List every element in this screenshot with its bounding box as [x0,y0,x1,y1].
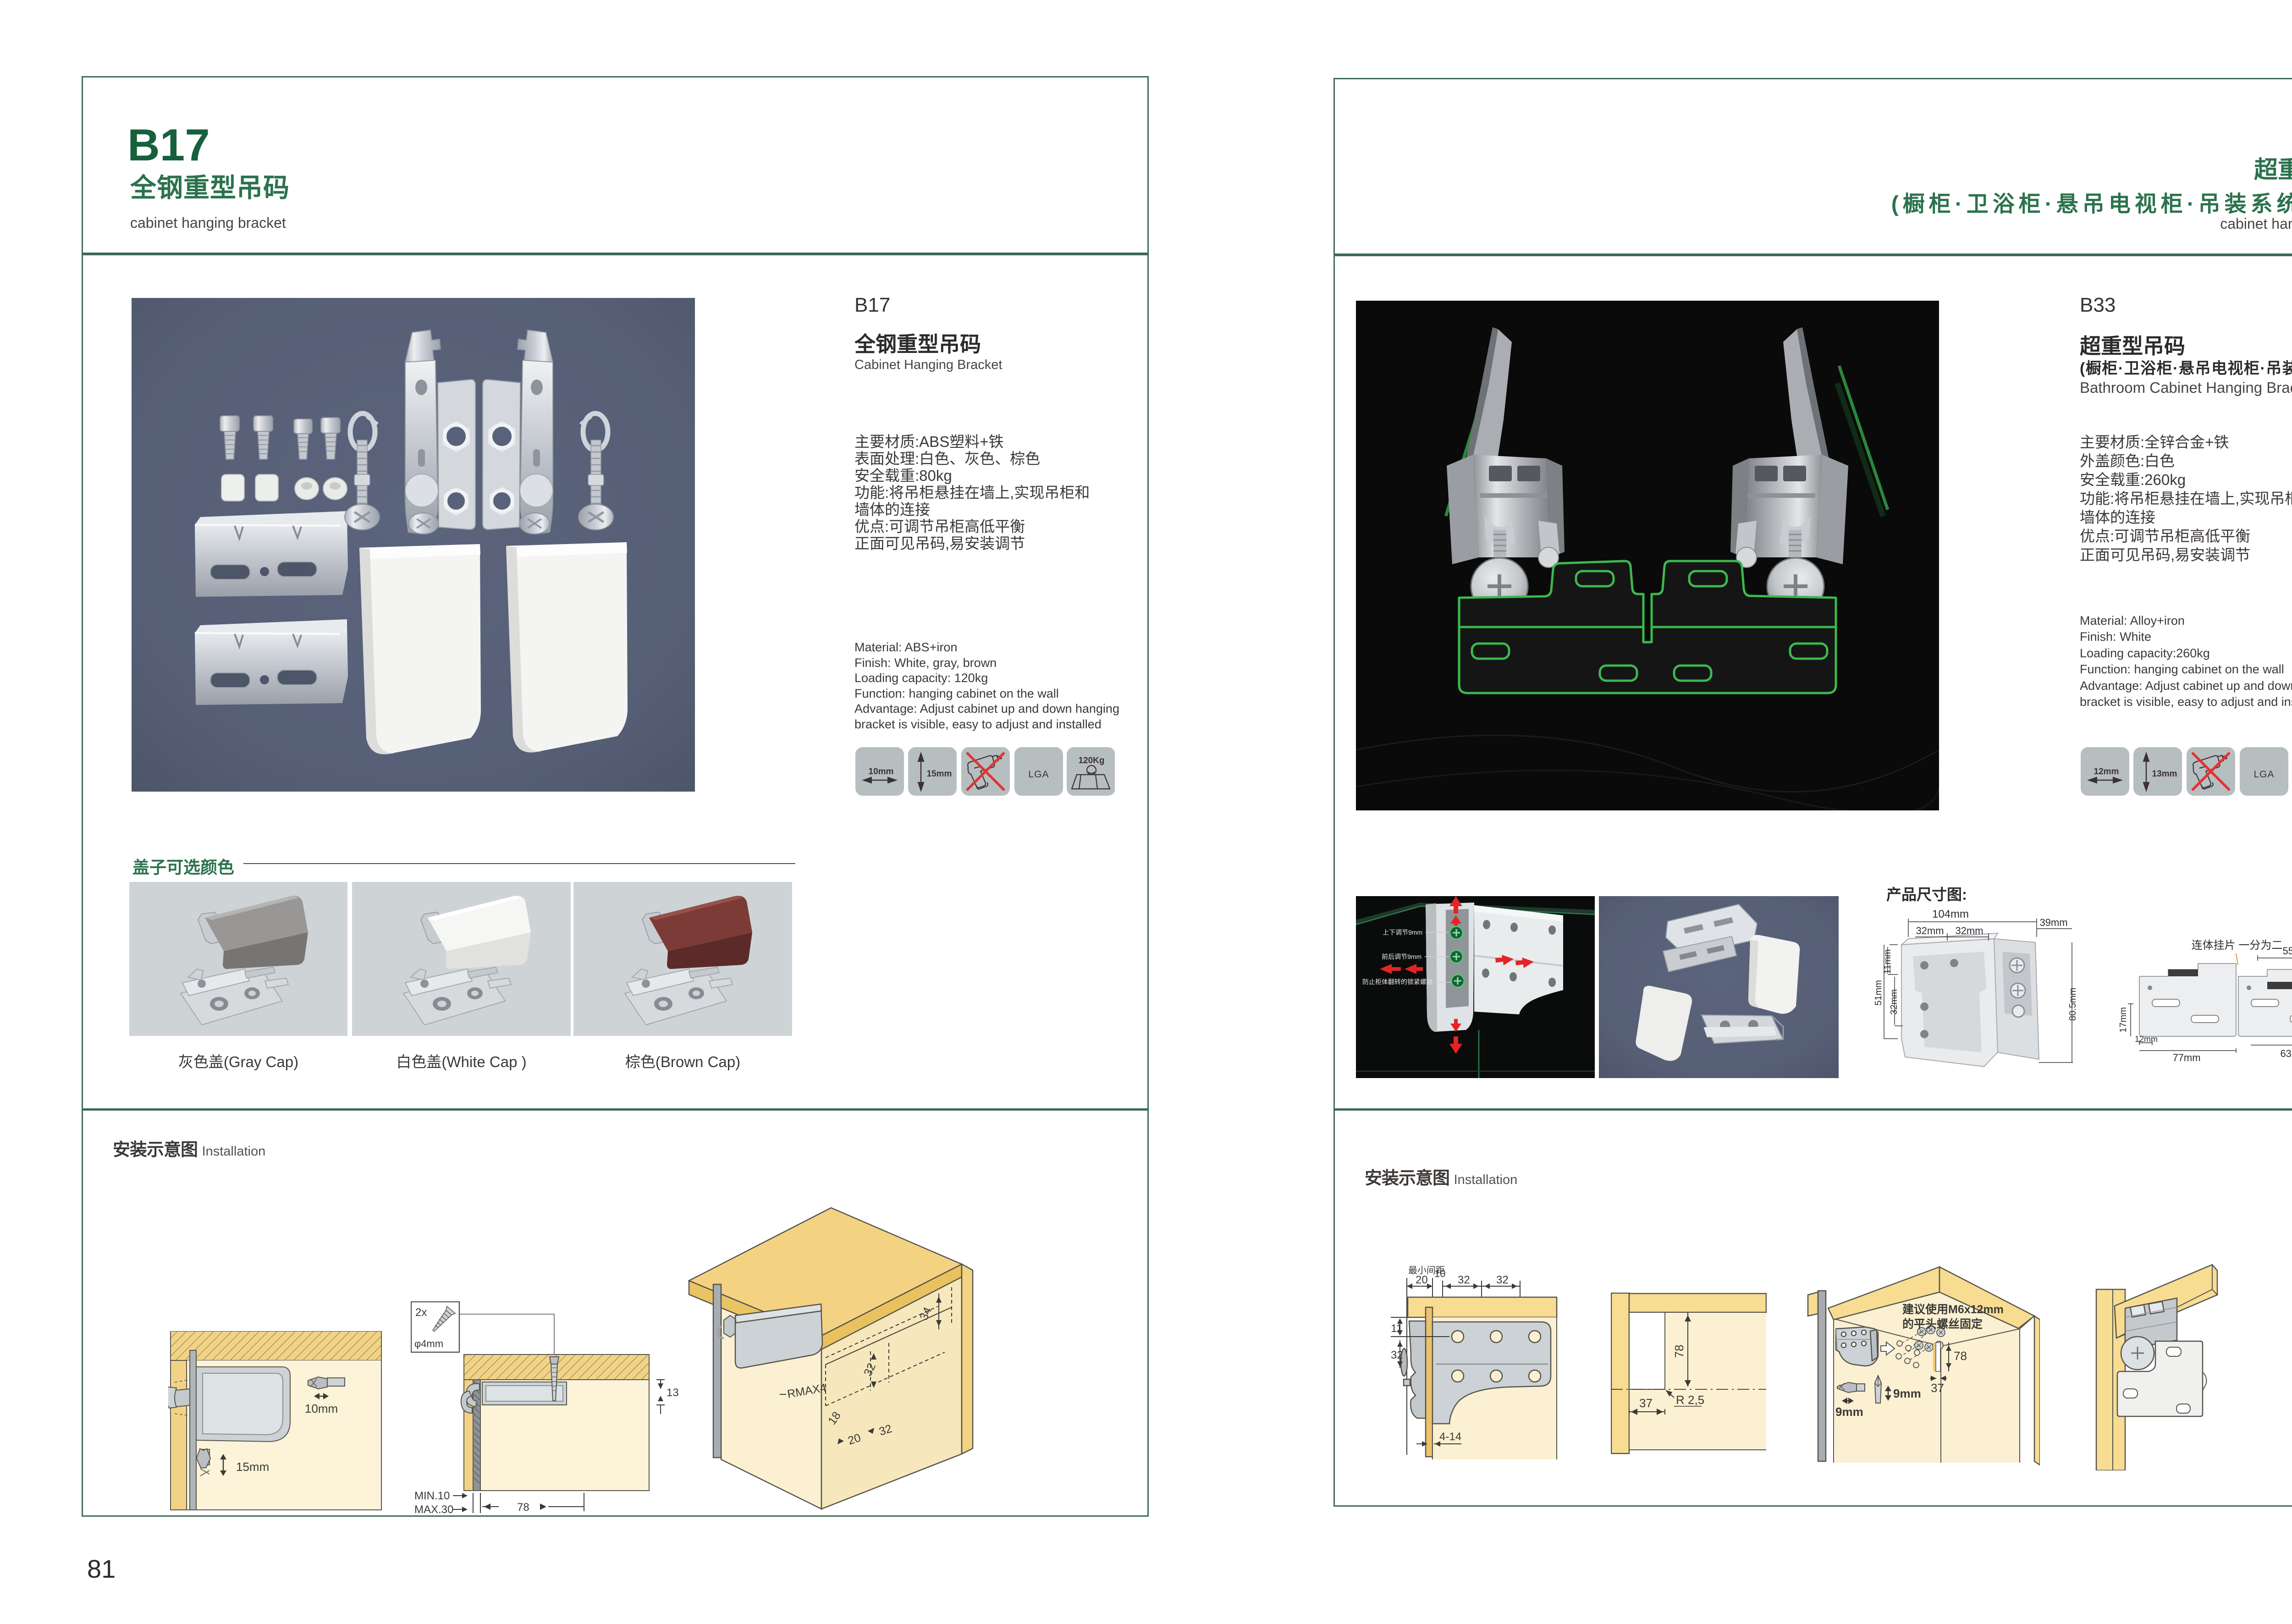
svg-text:37: 37 [1931,1381,1944,1395]
svg-text:32: 32 [1458,1274,1470,1286]
svg-text:10mm: 10mm [869,767,894,776]
svg-text:17mm: 17mm [2118,1007,2128,1033]
svg-text:2x: 2x [415,1306,427,1319]
svg-text:建议使用M6x12mm: 建议使用M6x12mm [1902,1303,2004,1316]
svg-text:20: 20 [1416,1274,1428,1286]
svg-text:77mm: 77mm [2172,1052,2200,1063]
svg-text:32mm: 32mm [1955,925,1983,936]
svg-text:的平头螺丝固定: 的平头螺丝固定 [1902,1317,1983,1331]
svg-text:R 2,5: R 2,5 [1676,1393,1704,1407]
svg-text:51mm: 51mm [1874,980,1884,1006]
svg-text:10mm: 10mm [305,1402,338,1415]
svg-text:9mm: 9mm [1835,1405,1863,1419]
svg-text:63mm: 63mm [2280,1048,2292,1059]
svg-text:15mm: 15mm [236,1460,269,1474]
svg-text:13mm: 13mm [2152,769,2177,779]
svg-text:12mm: 12mm [2135,1035,2158,1044]
svg-text:MAX.30: MAX.30 [414,1503,453,1516]
svg-text:上下调节9mm: 上下调节9mm [1383,929,1422,936]
svg-text:LGA: LGA [1028,769,1049,780]
svg-text:10: 10 [1434,1268,1445,1279]
svg-text:32: 32 [1391,1349,1403,1361]
svg-text:37: 37 [1639,1396,1653,1410]
svg-text:55mm: 55mm [2282,945,2292,957]
svg-text:32: 32 [1496,1274,1509,1286]
svg-text:12mm: 12mm [2094,767,2119,776]
svg-text:32mm: 32mm [1889,989,1899,1015]
svg-text:78: 78 [1954,1349,1967,1363]
svg-text:11: 11 [1391,1322,1402,1335]
svg-text:LGA: LGA [2253,769,2274,780]
svg-text:4-14: 4-14 [1439,1431,1461,1443]
svg-text:MIN.10: MIN.10 [414,1490,450,1502]
svg-text:78: 78 [1672,1345,1686,1358]
svg-text:11mm: 11mm [1883,949,1893,974]
svg-text:104mm: 104mm [1932,908,1969,920]
svg-text:80.5mm: 80.5mm [2068,988,2078,1021]
svg-text:连体挂片 一分为二: 连体挂片 一分为二 [2192,939,2283,952]
svg-text:15mm: 15mm [927,769,952,779]
svg-text:9mm: 9mm [1893,1387,1921,1400]
svg-text:39mm: 39mm [2039,917,2067,928]
svg-text:13: 13 [667,1387,679,1399]
svg-text:防止柜体翻转的锁紧螺丝: 防止柜体翻转的锁紧螺丝 [1362,978,1433,985]
svg-text:78: 78 [517,1501,529,1514]
svg-text:32mm: 32mm [1916,925,1944,936]
svg-text:前后调节9mm: 前后调节9mm [1382,953,1421,960]
svg-text:120Kg: 120Kg [1078,756,1104,765]
svg-text:φ4mm: φ4mm [414,1338,443,1349]
